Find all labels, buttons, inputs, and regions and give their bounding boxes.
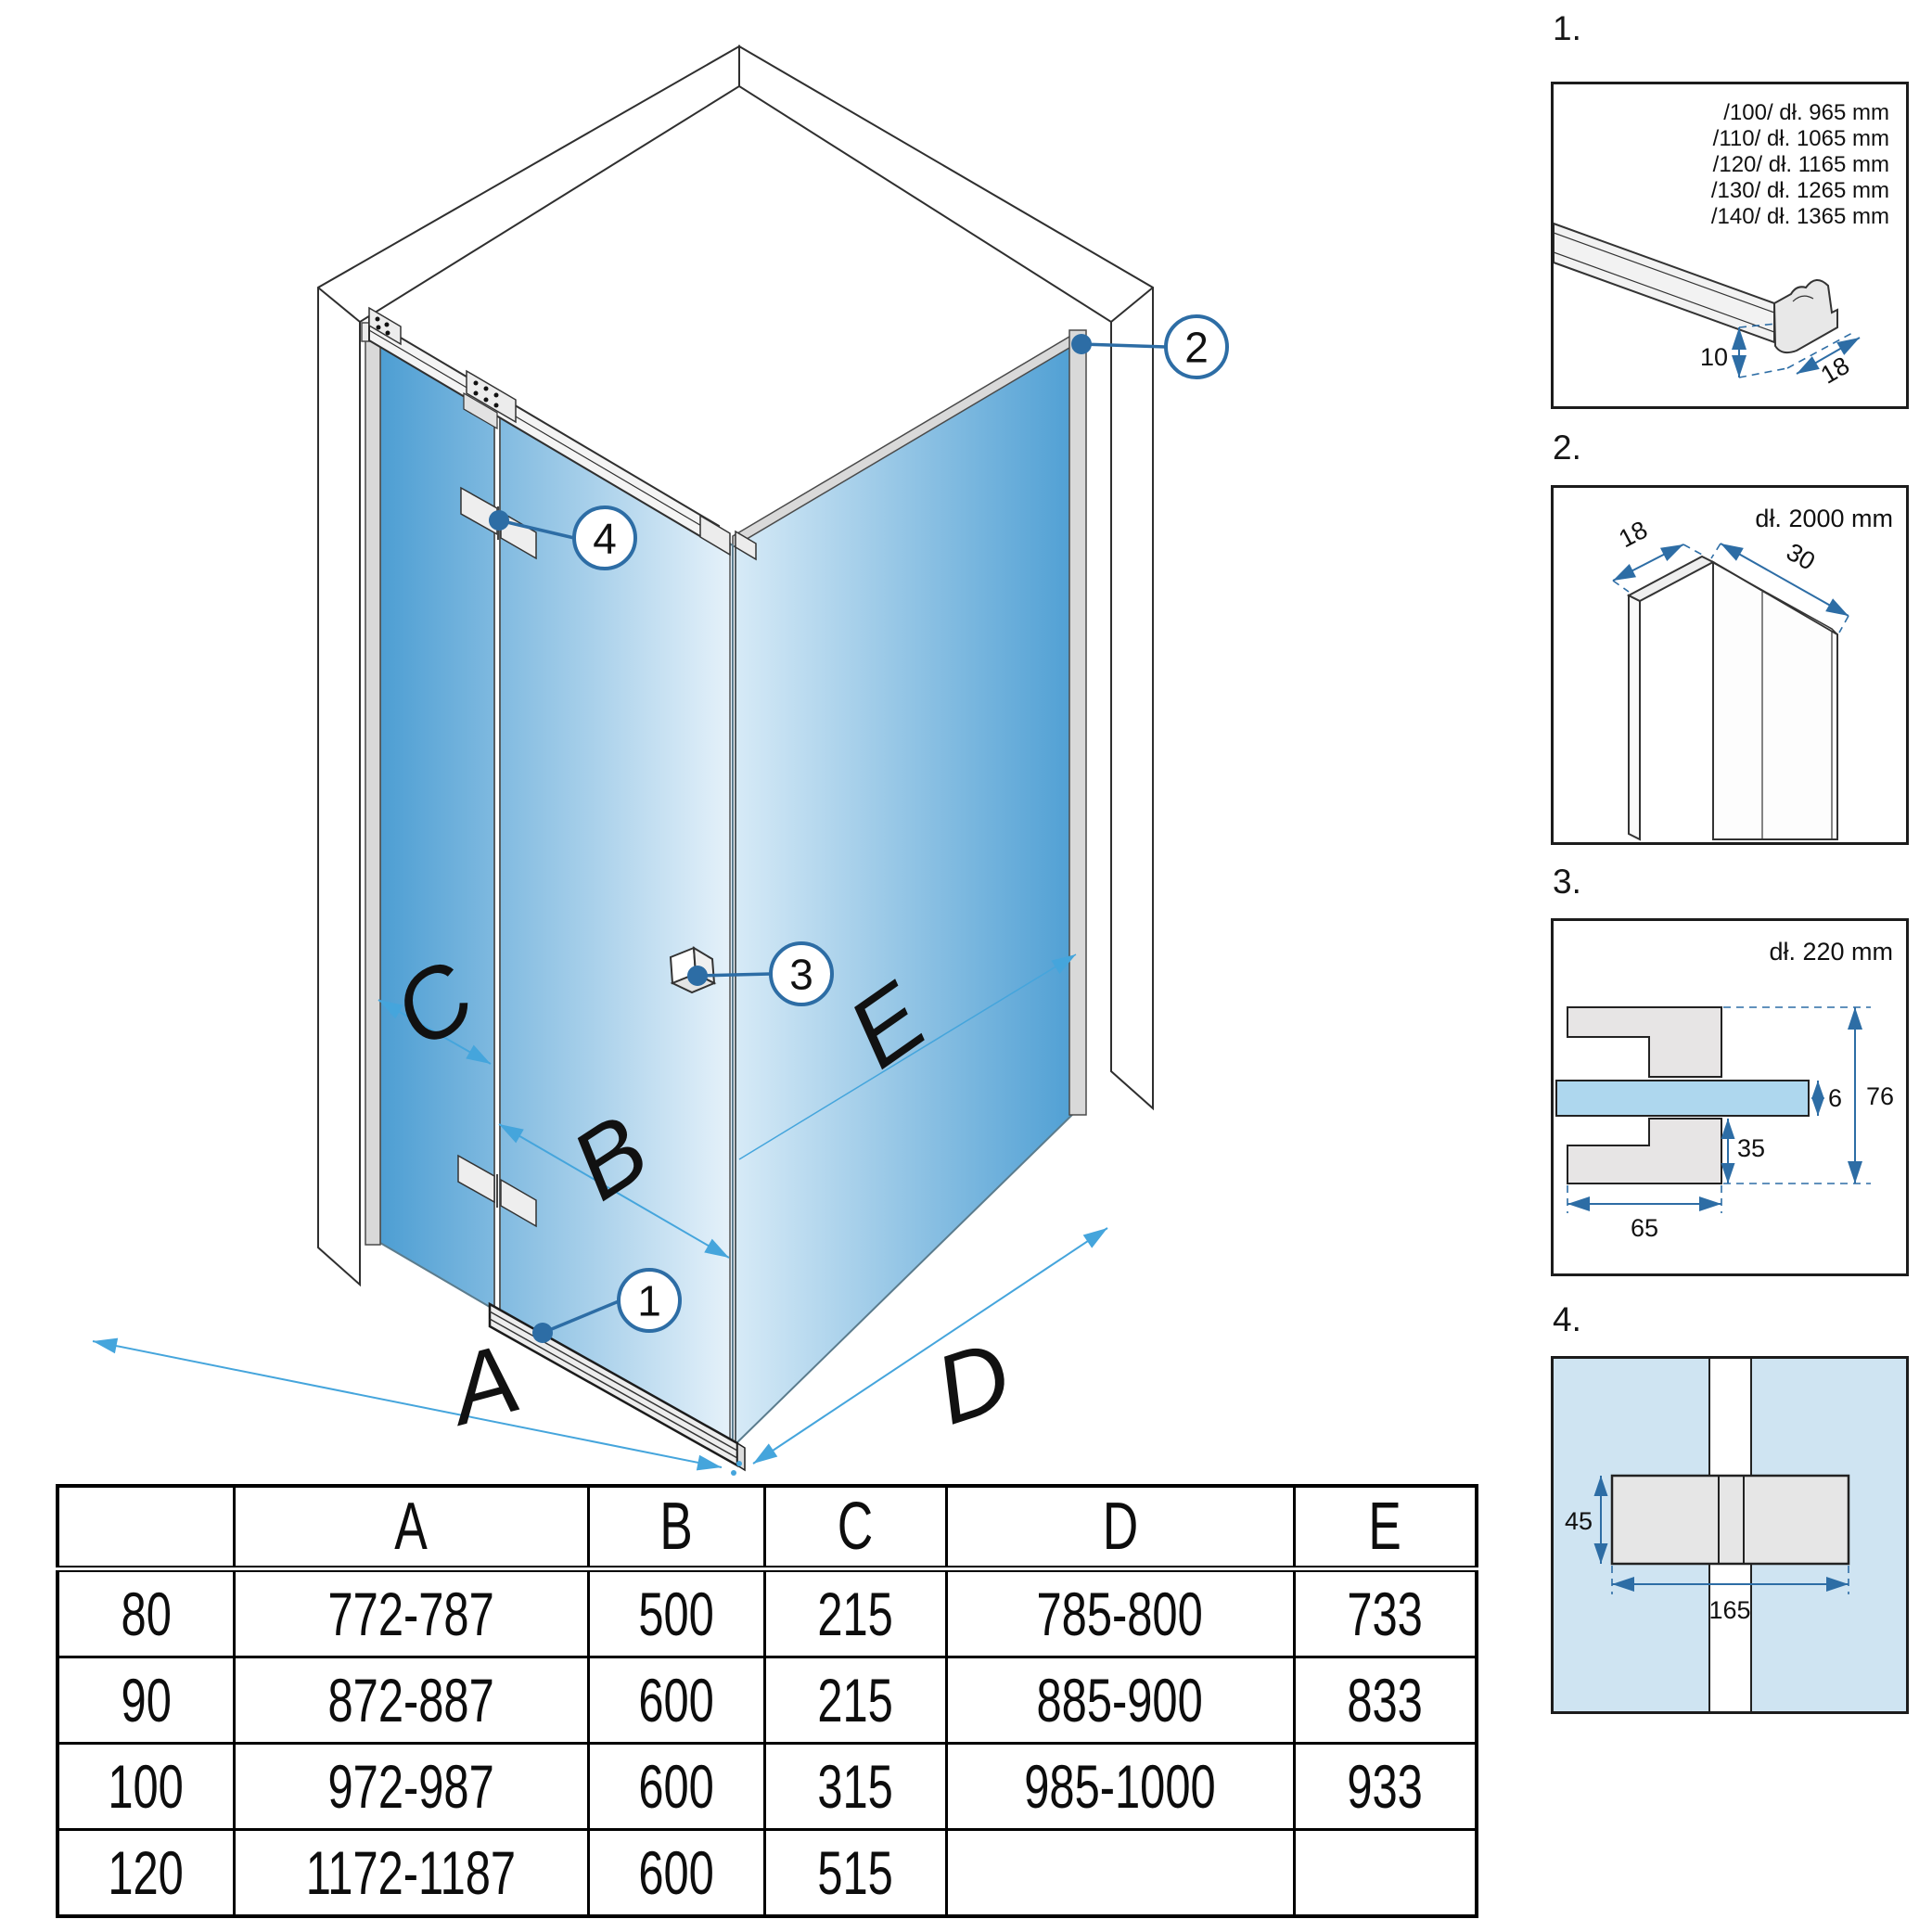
svg-text:/110/ dł. 1065 mm: /110/ dł. 1065 mm bbox=[1713, 126, 1889, 151]
svg-text:4: 4 bbox=[593, 515, 617, 563]
callout-2-marker bbox=[1071, 334, 1092, 354]
size-table: A B C D E 80 772-787 500 215 785-800 733… bbox=[56, 1484, 1478, 1918]
table-cell: 600 bbox=[588, 1830, 764, 1917]
svg-text:/100/ dł. 965 mm: /100/ dł. 965 mm bbox=[1723, 100, 1889, 125]
table-cell: 933 bbox=[1294, 1744, 1477, 1830]
table-cell: 972-987 bbox=[234, 1744, 588, 1830]
callout-3-marker bbox=[687, 966, 708, 986]
col-header-d: D bbox=[946, 1486, 1294, 1569]
size-table-header-row: A B C D E bbox=[58, 1486, 1477, 1569]
dim-letter-d: D bbox=[923, 1321, 1023, 1446]
wall-profile-right bbox=[1069, 330, 1086, 1115]
table-cell: 215 bbox=[764, 1569, 946, 1657]
svg-text:1: 1 bbox=[637, 1277, 661, 1325]
table-cell: 120 bbox=[58, 1830, 234, 1917]
rail-end-profile bbox=[1774, 280, 1837, 352]
hinge-plate-front bbox=[1612, 1476, 1849, 1564]
svg-text:/140/ dł. 1365 mm: /140/ dł. 1365 mm bbox=[1711, 204, 1889, 229]
detail-1-drawing: /100/ dł. 965 mm /110/ dł. 1065 mm /120/… bbox=[1554, 84, 1906, 406]
svg-text:/130/ dł. 1265 mm: /130/ dł. 1265 mm bbox=[1711, 178, 1889, 203]
dim-65: 65 bbox=[1631, 1214, 1658, 1242]
svg-text:/120/ dł. 1165 mm: /120/ dł. 1165 mm bbox=[1713, 152, 1889, 177]
col-header-b: B bbox=[588, 1486, 764, 1569]
dim-45: 45 bbox=[1565, 1507, 1593, 1535]
clamp-lower-block bbox=[1567, 1119, 1721, 1184]
table-cell: 600 bbox=[588, 1657, 764, 1744]
callout-1-marker bbox=[532, 1323, 553, 1343]
svg-text:2: 2 bbox=[1184, 324, 1209, 372]
table-row: 100 972-987 600 315 985-1000 933 bbox=[58, 1744, 1477, 1830]
detail-2-length: dł. 2000 mm bbox=[1755, 505, 1893, 532]
dim-18: 18 bbox=[1816, 352, 1854, 390]
table-row: 120 1172-1187 600 515 bbox=[58, 1830, 1477, 1917]
table-cell: 985-1000 bbox=[946, 1744, 1294, 1830]
table-row: 80 772-787 500 215 785-800 733 bbox=[58, 1569, 1477, 1657]
table-row: 90 872-887 600 215 885-900 833 bbox=[58, 1657, 1477, 1744]
table-cell: 100 bbox=[58, 1744, 234, 1830]
col-header-c: C bbox=[764, 1486, 946, 1569]
detail-2-drawing: dł. 2000 mm 18 30 bbox=[1554, 488, 1906, 842]
table-cell: 785-800 bbox=[946, 1569, 1294, 1657]
detail-3-drawing: dł. 220 mm 6 76 35 65 bbox=[1554, 921, 1906, 1273]
table-cell: 515 bbox=[764, 1830, 946, 1917]
detail-3-box: dł. 220 mm 6 76 35 65 bbox=[1551, 918, 1909, 1276]
dim-6: 6 bbox=[1828, 1084, 1842, 1112]
detail-2-box: dł. 2000 mm 18 30 bbox=[1551, 485, 1909, 845]
left-fixed-glass-panel bbox=[380, 345, 494, 1310]
clamp-upper-block bbox=[1567, 1007, 1721, 1077]
table-cell: 215 bbox=[764, 1657, 946, 1744]
table-cell: 1172-1187 bbox=[234, 1830, 588, 1917]
col-header-size bbox=[58, 1486, 234, 1569]
dim-30: 30 bbox=[1782, 538, 1820, 576]
table-cell: 90 bbox=[58, 1657, 234, 1744]
table-cell: 833 bbox=[1294, 1657, 1477, 1744]
page: { "colors": { "callout_blue": "#2d6da5",… bbox=[0, 0, 1932, 1932]
svg-text:3: 3 bbox=[789, 951, 813, 999]
table-cell: 885-900 bbox=[946, 1657, 1294, 1744]
table-cell: 600 bbox=[588, 1744, 764, 1830]
dim-10: 10 bbox=[1700, 343, 1728, 371]
dim-35: 35 bbox=[1737, 1134, 1765, 1162]
detail-1-size-list: /100/ dł. 965 mm /110/ dł. 1065 mm /120/… bbox=[1711, 100, 1889, 229]
table-cell: 733 bbox=[1294, 1569, 1477, 1657]
detail-4-box: 45 165 bbox=[1551, 1356, 1909, 1714]
table-cell: 315 bbox=[764, 1744, 946, 1830]
col-header-a: A bbox=[234, 1486, 588, 1569]
detail-3-label: 3. bbox=[1553, 863, 1581, 902]
table-cell: 500 bbox=[588, 1569, 764, 1657]
detail-4-drawing: 45 165 bbox=[1554, 1359, 1906, 1711]
table-cell: 772-787 bbox=[234, 1569, 588, 1657]
detail-1-box: /100/ dł. 965 mm /110/ dł. 1065 mm /120/… bbox=[1551, 82, 1909, 409]
dim-76: 76 bbox=[1866, 1082, 1894, 1110]
dim-165: 165 bbox=[1708, 1596, 1750, 1624]
table-cell: 80 bbox=[58, 1569, 234, 1657]
dim-18-wall: 18 bbox=[1614, 516, 1652, 554]
detail-2-label: 2. bbox=[1553, 429, 1581, 467]
detail-3-length: dł. 220 mm bbox=[1769, 938, 1893, 966]
right-glass-panel bbox=[733, 334, 1074, 1444]
table-cell bbox=[946, 1830, 1294, 1917]
rail-bar-3d bbox=[1554, 224, 1837, 352]
detail-1-label: 1. bbox=[1553, 9, 1581, 48]
detail-3-dimensions: 6 76 35 65 bbox=[1567, 1007, 1894, 1242]
detail-4-label: 4. bbox=[1553, 1300, 1581, 1339]
callout-4-marker bbox=[489, 510, 509, 531]
col-header-e: E bbox=[1294, 1486, 1477, 1569]
glass-pane-section bbox=[1556, 1081, 1809, 1116]
shower-enclosure-isometric-drawing: C B E A D 1 2 3 4 bbox=[0, 0, 1345, 1484]
wall-profile-3d bbox=[1629, 557, 1837, 839]
table-cell: 872-887 bbox=[234, 1657, 588, 1744]
table-cell bbox=[1294, 1830, 1477, 1917]
